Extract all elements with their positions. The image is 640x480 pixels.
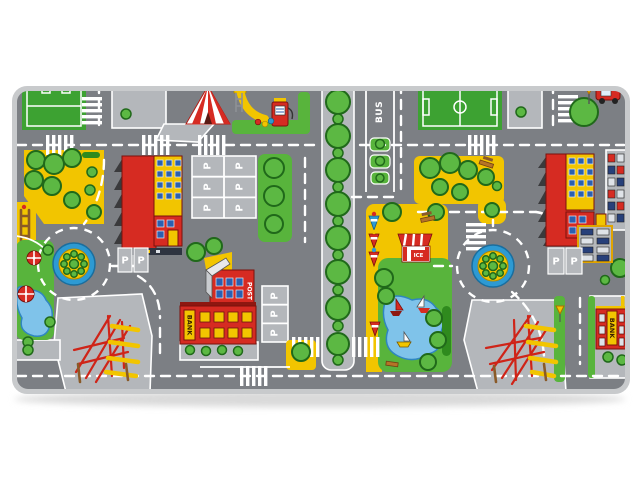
factory-left <box>114 156 182 255</box>
bank-building-left: BANK <box>180 302 256 344</box>
rug: POST BANK BANK <box>12 79 630 394</box>
parking-mark: P <box>235 162 246 169</box>
ice-sign-label: ICE <box>414 253 424 259</box>
parking-mark: P <box>121 256 128 267</box>
post-sign-label: POST <box>246 282 253 301</box>
green-strip-br2 <box>588 296 595 378</box>
car-park-lot <box>578 226 612 262</box>
hedge <box>442 306 451 356</box>
parking-mark: P <box>270 310 281 317</box>
factory-door <box>168 230 178 246</box>
parking-mark: P <box>235 204 246 211</box>
parking-mark: P <box>270 329 281 336</box>
parking-mark: P <box>203 183 214 190</box>
parking-mark: P <box>270 292 281 299</box>
boat-pond <box>383 296 443 360</box>
parking-mark: P <box>203 204 214 211</box>
bank-sign-label: BANK <box>186 315 194 336</box>
parking-mark: P <box>203 162 214 169</box>
ice-cream-stand: ICE <box>398 234 432 262</box>
play-rug-illustration: POST BANK BANK <box>0 0 640 480</box>
green-stub-top <box>298 92 310 128</box>
parking-mark: P <box>552 257 559 268</box>
bank-building-right: BANK <box>596 306 626 349</box>
parking-block-topleft <box>112 88 166 128</box>
parking-mark: P <box>570 257 577 268</box>
parking-mark: P <box>235 183 246 190</box>
product-photo: POST BANK BANK <box>0 0 640 480</box>
bank-sign-label: BANK <box>608 318 616 339</box>
parking-mark: P <box>137 256 144 267</box>
bus-lane-label: BUS <box>375 101 385 123</box>
